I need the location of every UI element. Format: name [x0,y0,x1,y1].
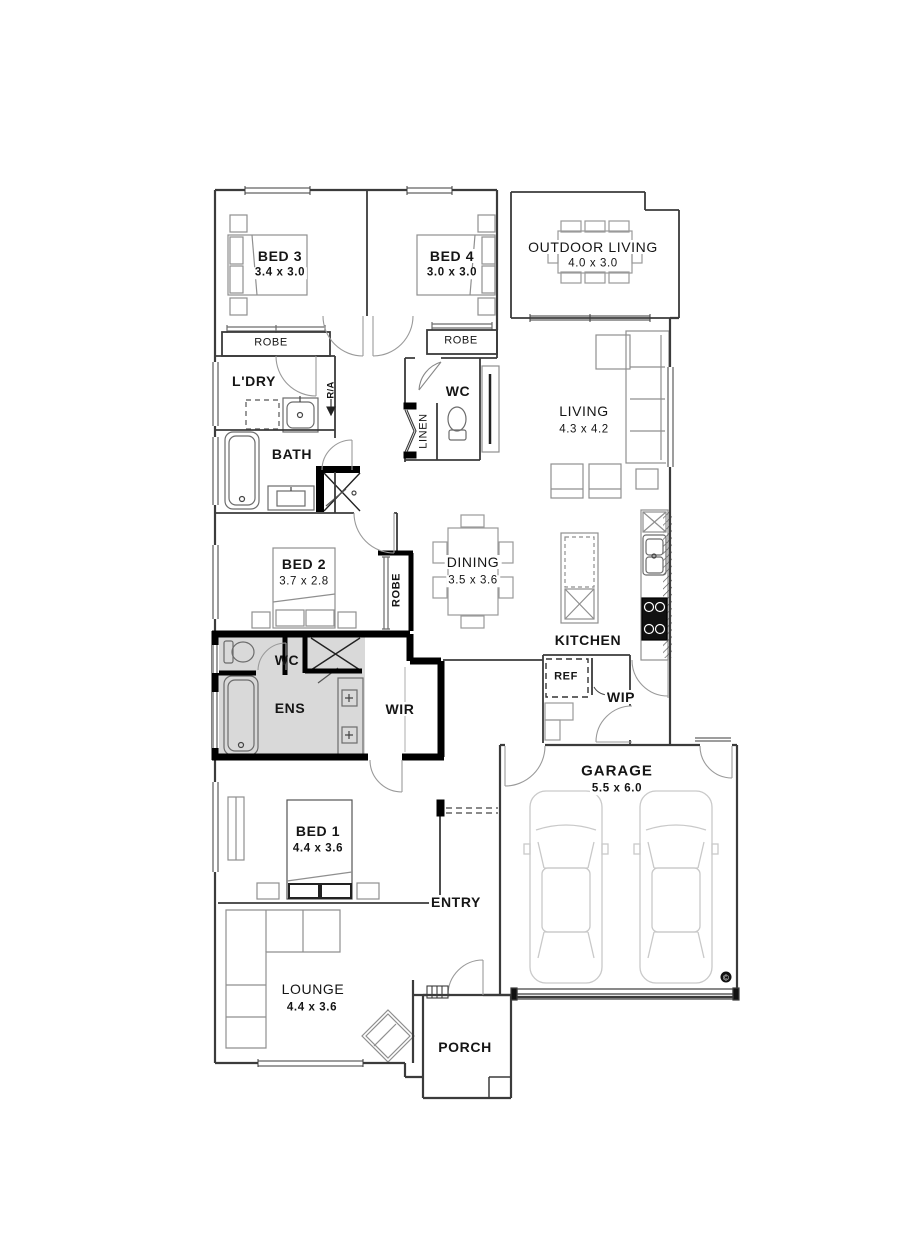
room-dims-garage: 5.5 x 6.0 [590,783,644,795]
floor-plan: © BED 3 3.4 x 3.0 BED 4 3.0 x 3.0 OUTDOO… [0,0,901,1245]
room-dims-lounge: 4.4 x 3.6 [285,1002,339,1014]
room-dims-bed3: 3.4 x 3.0 [253,267,307,279]
room-label-bed2: BED 2 [280,557,328,571]
linen-label: LINEN [419,411,430,450]
room-dims-bed2: 3.7 x 2.8 [277,576,331,588]
robe-label-bed3: ROBE [252,338,290,349]
room-label-bed3: BED 3 [256,249,304,263]
entry-dashed-line [446,808,498,813]
return-air-label: R/A [326,379,336,400]
room-dims-dining: 3.5 x 3.6 [446,575,500,587]
garage-symbol-badge: © [721,972,732,983]
room-label-bath: BATH [270,447,314,461]
return-air-arrow [327,399,335,415]
room-dims-living: 4.3 x 4.2 [557,424,611,436]
robe-label-bed4: ROBE [442,336,480,347]
room-label-bed1: BED 1 [294,824,342,838]
room-label-wir: WIR [383,702,416,716]
room-label-lounge: LOUNGE [280,982,347,996]
room-label-wc-main: WC [444,384,473,398]
room-dims-bed4: 3.0 x 3.0 [425,267,479,279]
room-label-kitchen: KITCHEN [553,633,623,647]
floor-plan-drawing: © [0,0,901,1245]
room-label-wip: WIP [605,690,637,704]
room-label-laundry: L'DRY [230,374,278,388]
front-door-sidelight [427,986,448,998]
robe-label-bed2: ROBE [392,571,403,609]
room-label-ensuite: ENS [273,701,308,715]
garage-door [511,988,739,1000]
room-label-porch: PORCH [436,1040,494,1054]
fridge-label: REF [552,672,580,683]
room-label-entry: ENTRY [429,895,483,909]
room-dims-outdoor-living: 4.0 x 3.0 [566,258,620,270]
room-label-garage: GARAGE [579,764,655,779]
garage-symbol: © [723,974,729,983]
room-label-wc-ens: WC [273,653,302,667]
garage-cars [524,791,718,983]
room-dims-bed1: 4.4 x 3.6 [291,843,345,855]
room-label-outdoor-living: OUTDOOR LIVING [526,240,660,254]
room-label-living: LIVING [557,404,611,418]
room-label-bed4: BED 4 [428,249,476,263]
interior-walls [215,191,630,903]
room-label-dining: DINING [445,555,502,569]
